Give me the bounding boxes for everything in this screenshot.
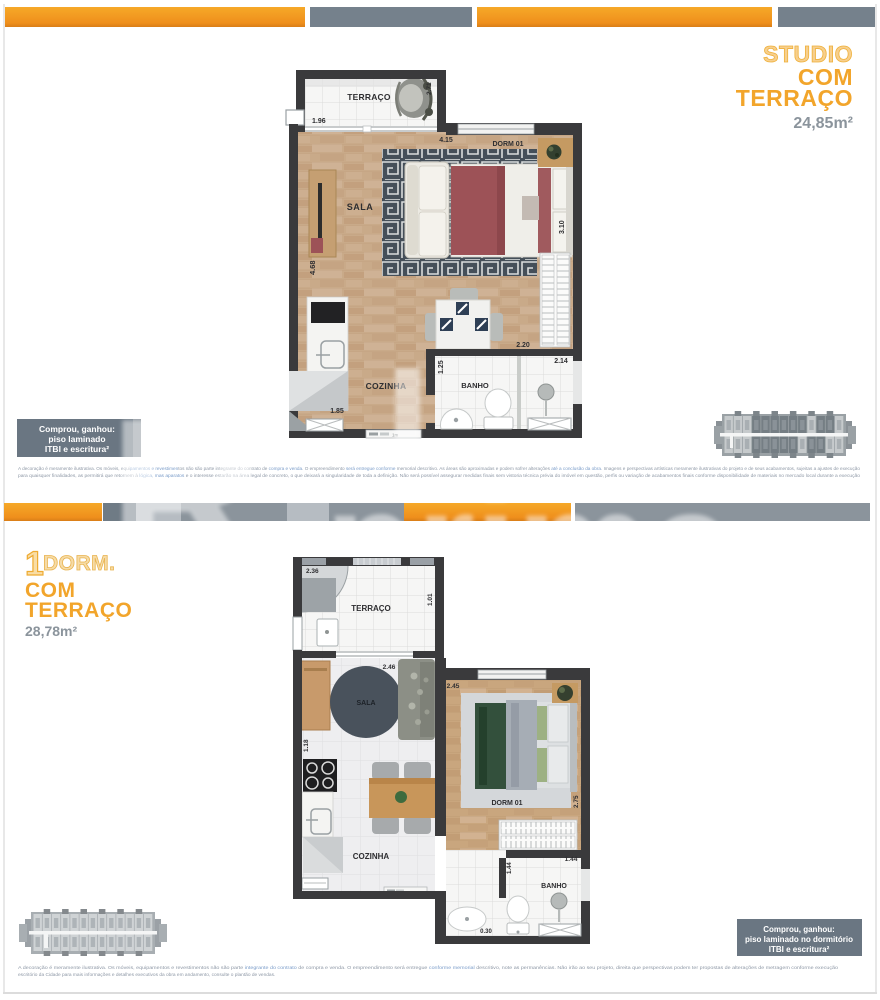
svg-text:24,85m²: 24,85m² xyxy=(793,115,853,132)
svg-text:COZINHA: COZINHA xyxy=(353,852,390,861)
svg-text:0.30: 0.30 xyxy=(480,929,492,935)
svg-text:ITBI e escritura²: ITBI e escritura² xyxy=(45,444,109,454)
svg-text:1.18: 1.18 xyxy=(303,739,310,752)
svg-text:DORM 01: DORM 01 xyxy=(491,800,522,807)
svg-text:4.68: 4.68 xyxy=(308,260,317,275)
svg-text:2.75: 2.75 xyxy=(573,795,580,808)
svg-text:28,78m²: 28,78m² xyxy=(25,623,77,639)
svg-text:piso laminado: piso laminado xyxy=(48,434,105,444)
svg-text:BANHO: BANHO xyxy=(461,381,489,390)
svg-text:ITBI e escritura²: ITBI e escritura² xyxy=(769,945,830,954)
svg-text:A decoração é meramente ilustr: A decoração é meramente ilustrativa. Os … xyxy=(18,965,838,971)
svg-text:1.25: 1.25 xyxy=(438,360,445,374)
svg-text:1.44: 1.44 xyxy=(507,862,513,874)
svg-text:2.45: 2.45 xyxy=(447,683,460,690)
svg-text:1.01: 1.01 xyxy=(427,593,434,606)
svg-text:TERRAÇO: TERRAÇO xyxy=(25,599,132,622)
svg-text:2.46: 2.46 xyxy=(383,664,396,671)
svg-text:DORM.: DORM. xyxy=(43,552,116,575)
svg-text:1.85: 1.85 xyxy=(330,408,344,415)
svg-text:Comprou, ganhou:: Comprou, ganhou: xyxy=(39,424,115,434)
svg-text:TERRAÇO: TERRAÇO xyxy=(351,604,391,613)
svg-text:2.20: 2.20 xyxy=(516,342,530,349)
svg-text:SALA: SALA xyxy=(356,700,375,707)
svg-text:TERRAÇO: TERRAÇO xyxy=(736,85,853,111)
svg-text:1.44: 1.44 xyxy=(565,856,578,863)
svg-text:1: 1 xyxy=(25,545,44,583)
svg-text:Comprou, ganhou:: Comprou, ganhou: xyxy=(763,925,835,934)
svg-text:DORM 01: DORM 01 xyxy=(492,141,523,148)
svg-text:2.71: 2.71 xyxy=(426,82,433,95)
svg-text:2.36: 2.36 xyxy=(306,568,319,575)
svg-text:escritório da Cidade para mais: escritório da Cidade para mais informaçõ… xyxy=(18,972,275,978)
svg-text:SALA: SALA xyxy=(347,202,374,212)
svg-text:4.15: 4.15 xyxy=(439,137,453,144)
svg-text:R: R xyxy=(108,373,263,614)
svg-text:2.14: 2.14 xyxy=(554,358,568,365)
svg-text:3.10: 3.10 xyxy=(559,220,566,234)
svg-text:BANHO: BANHO xyxy=(541,883,567,890)
svg-text:TERRAÇO: TERRAÇO xyxy=(347,92,391,102)
svg-text:1.96: 1.96 xyxy=(312,118,326,125)
svg-text:piso laminado no dormitório: piso laminado no dormitório xyxy=(745,935,853,944)
